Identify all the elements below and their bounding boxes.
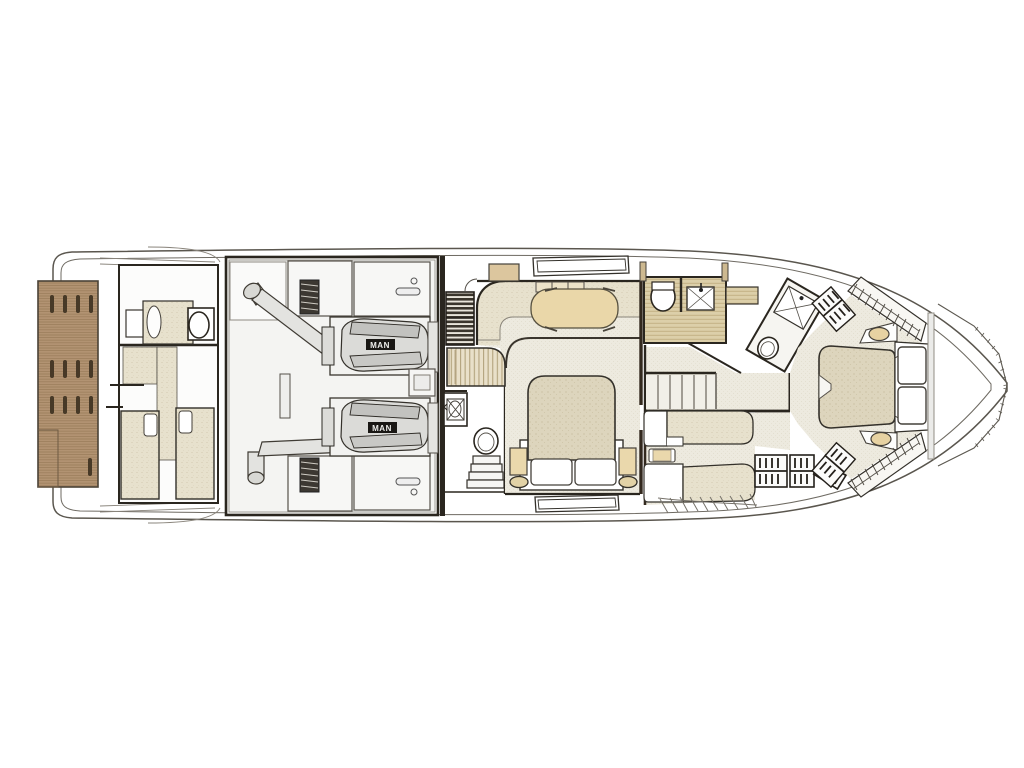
svg-text:MAN: MAN (370, 341, 390, 350)
svg-text:MAN: MAN (372, 424, 392, 433)
